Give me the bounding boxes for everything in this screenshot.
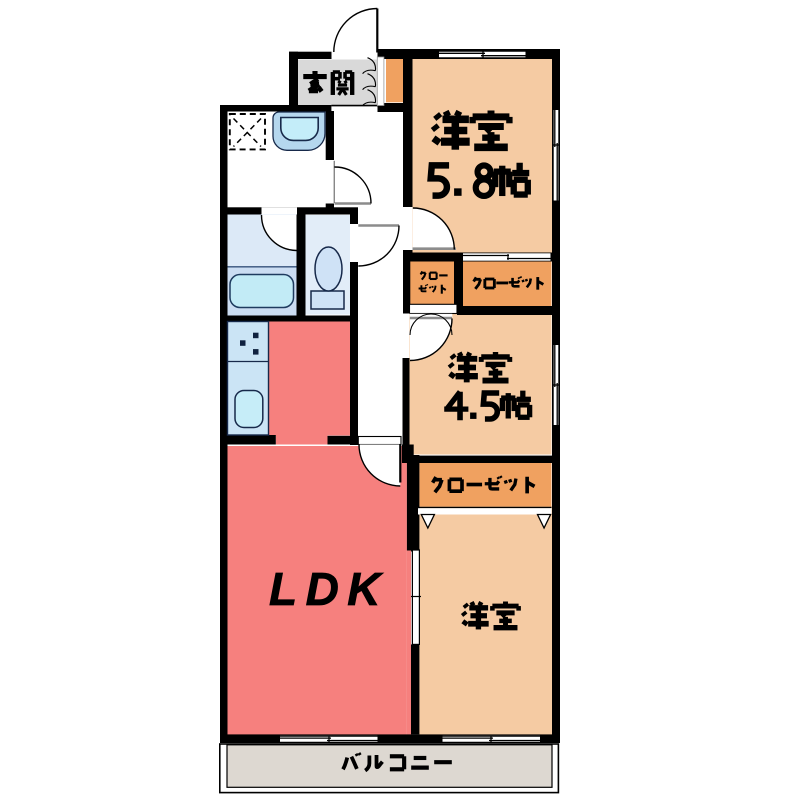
svg-text:LDK: LDK (269, 563, 389, 615)
